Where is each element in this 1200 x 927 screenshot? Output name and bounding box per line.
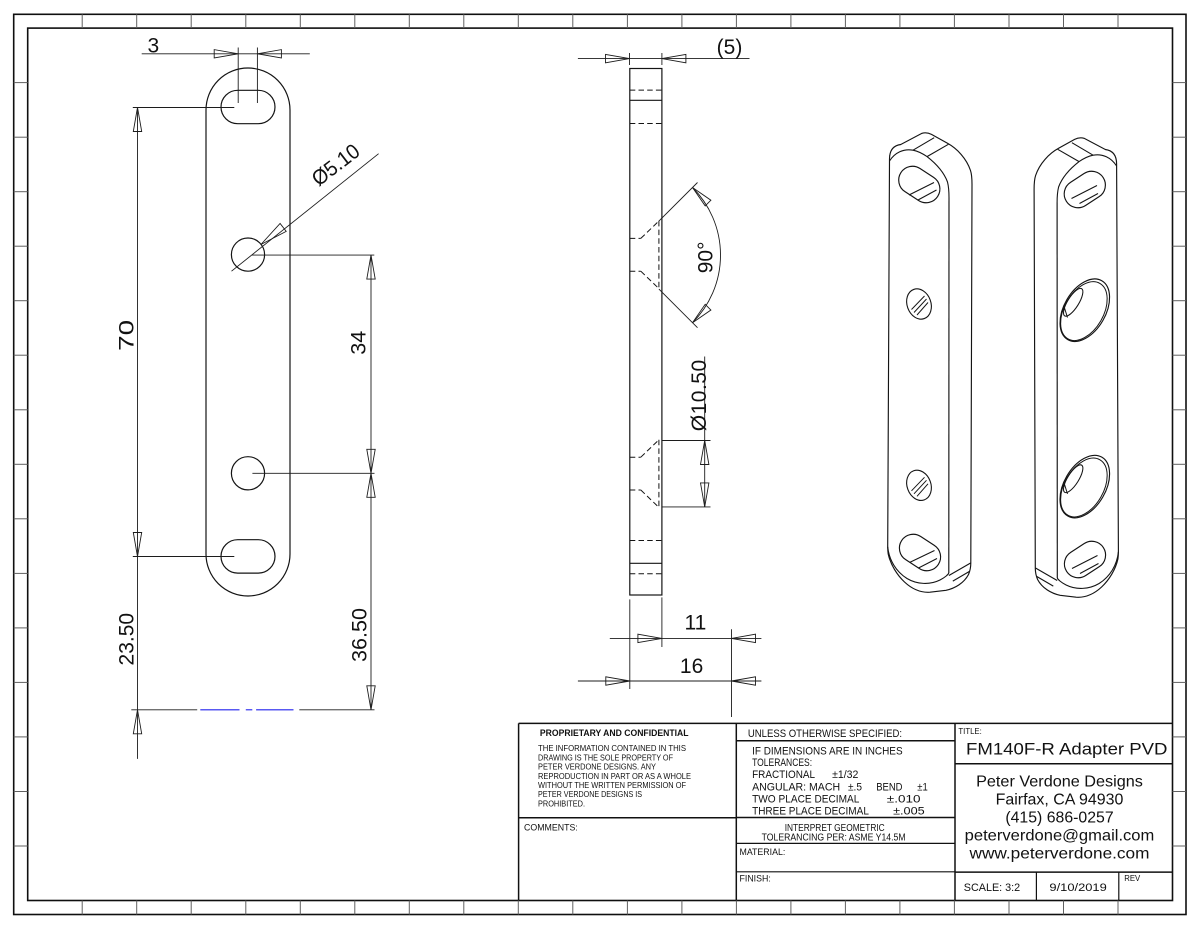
svg-text:PROHIBITED.: PROHIBITED. [538, 799, 585, 808]
svg-text:DRAWING IS THE SOLE PROPERTY O: DRAWING IS THE SOLE PROPERTY OF [538, 753, 673, 762]
svg-text:PETER VERDONE DESIGNS. ANY: PETER VERDONE DESIGNS. ANY [538, 763, 656, 772]
svg-text:16: 16 [680, 655, 703, 678]
svg-text:Peter Verdone Designs: Peter Verdone Designs [976, 774, 1143, 791]
svg-text:WITHOUT THE WRITTEN PERMISSION: WITHOUT THE WRITTEN PERMISSION OF [538, 781, 686, 790]
svg-text:TWO PLACE DECIMAL: TWO PLACE DECIMAL [752, 793, 859, 805]
svg-text:TOLERANCING PER: ASME Y14.5M: TOLERANCING PER: ASME Y14.5M [762, 832, 906, 843]
svg-text:11: 11 [684, 611, 706, 634]
svg-text:FRACTIONAL: FRACTIONAL [752, 769, 815, 781]
svg-text:PETER VERDONE DESIGNS IS: PETER VERDONE DESIGNS IS [538, 790, 642, 799]
svg-text:FM140F-R Adapter PVD: FM140F-R Adapter PVD [966, 741, 1168, 759]
svg-text:REPRODUCTION IN PART OR AS A W: REPRODUCTION IN PART OR AS A WHOLE [538, 772, 691, 781]
svg-text:www.peterverdone.com: www.peterverdone.com [968, 845, 1149, 862]
svg-text:70: 70 [116, 320, 139, 351]
svg-text:THREE PLACE DECIMAL: THREE PLACE DECIMAL [752, 806, 869, 818]
svg-text:±.010: ±.010 [887, 793, 921, 805]
svg-text:±1: ±1 [917, 781, 928, 793]
svg-text:±.5: ±.5 [848, 781, 862, 793]
svg-text:(5): (5) [717, 36, 743, 59]
svg-text:9/10/2019: 9/10/2019 [1049, 882, 1106, 894]
svg-text:UNLESS OTHERWISE SPECIFIED:: UNLESS OTHERWISE SPECIFIED: [748, 728, 902, 740]
svg-text:PROPRIETARY AND CONFIDENTIAL: PROPRIETARY AND CONFIDENTIAL [540, 728, 689, 739]
svg-text:BEND: BEND [876, 781, 902, 793]
svg-text:Fairfax, CA 94930: Fairfax, CA 94930 [996, 792, 1124, 809]
svg-text:3: 3 [148, 34, 160, 57]
svg-text:THE INFORMATION CONTAINED IN T: THE INFORMATION CONTAINED IN THIS [538, 744, 686, 753]
svg-text:23.50: 23.50 [116, 613, 139, 666]
svg-text:±1/32: ±1/32 [832, 769, 858, 781]
svg-text:±.005: ±.005 [893, 806, 925, 818]
svg-text:SCALE: 3:2: SCALE: 3:2 [964, 882, 1020, 894]
svg-text:90°: 90° [695, 242, 718, 274]
svg-text:36.50: 36.50 [349, 608, 372, 662]
svg-text:34: 34 [348, 330, 371, 354]
svg-text:FINISH:: FINISH: [740, 874, 771, 884]
svg-text:peterverdone@gmail.com: peterverdone@gmail.com [965, 827, 1155, 844]
svg-text:ANGULAR: MACH: ANGULAR: MACH [752, 781, 840, 793]
svg-text:TOLERANCES:: TOLERANCES: [752, 757, 812, 769]
svg-text:(415) 686-0257: (415) 686-0257 [1005, 810, 1113, 827]
svg-text:MATERIAL:: MATERIAL: [740, 847, 786, 857]
svg-text:TITLE:: TITLE: [958, 727, 981, 736]
svg-text:COMMENTS:: COMMENTS: [524, 823, 578, 833]
svg-text:REV: REV [1124, 874, 1141, 883]
svg-text:Ø10.50: Ø10.50 [688, 359, 711, 431]
svg-text:IF DIMENSIONS ARE IN INCHES: IF DIMENSIONS ARE IN INCHES [752, 746, 903, 758]
